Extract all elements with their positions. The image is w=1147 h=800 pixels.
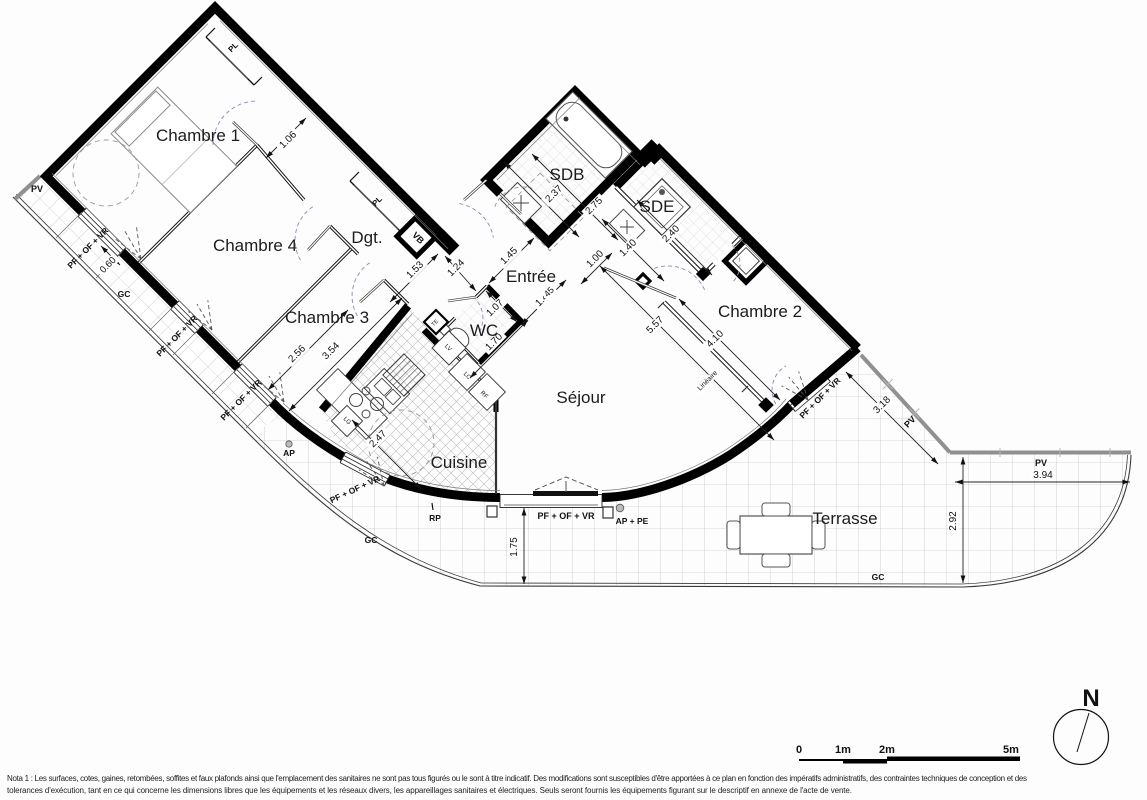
- svg-text:AP + PE: AP + PE: [616, 516, 649, 526]
- svg-text:3.94: 3.94: [1033, 470, 1053, 481]
- svg-text:Chambre 3: Chambre 3: [285, 308, 369, 327]
- svg-text:Cuisine: Cuisine: [431, 453, 488, 472]
- svg-text:0: 0: [796, 744, 802, 756]
- svg-text:Terrasse: Terrasse: [812, 509, 877, 528]
- svg-text:2.92: 2.92: [948, 511, 959, 531]
- svg-text:RP: RP: [429, 513, 441, 523]
- svg-text:AP: AP: [283, 448, 295, 458]
- svg-text:tolerances d'exécution, tant e: tolerances d'exécution, tant en ce qui c…: [7, 786, 852, 795]
- svg-text:PF + OF + VR: PF + OF + VR: [537, 511, 595, 521]
- svg-text:Séjour: Séjour: [556, 388, 605, 407]
- svg-text:Entrée: Entrée: [506, 267, 556, 286]
- svg-text:PV: PV: [31, 184, 43, 194]
- svg-text:5m: 5m: [1003, 744, 1019, 756]
- svg-text:Chambre 2: Chambre 2: [718, 302, 802, 321]
- svg-text:GC: GC: [365, 535, 378, 545]
- svg-text:2m: 2m: [879, 744, 895, 756]
- svg-text:SDB: SDB: [550, 165, 585, 184]
- svg-text:Chambre 4: Chambre 4: [213, 236, 297, 255]
- svg-text:WC: WC: [470, 321, 498, 340]
- svg-text:GC: GC: [118, 289, 131, 299]
- svg-text:1.75: 1.75: [509, 537, 520, 557]
- svg-text:Dgt.: Dgt.: [351, 228, 382, 247]
- svg-text:Chambre 1: Chambre 1: [156, 126, 240, 145]
- svg-text:N: N: [1082, 685, 1099, 712]
- svg-text:SDE: SDE: [640, 197, 675, 216]
- svg-text:Nota 1 : Les surfaces, cotes,: Nota 1 : Les surfaces, cotes, gaines, re…: [7, 774, 1027, 783]
- svg-text:GC: GC: [872, 572, 885, 582]
- svg-text:PV: PV: [1035, 458, 1047, 468]
- svg-text:1m: 1m: [835, 744, 851, 756]
